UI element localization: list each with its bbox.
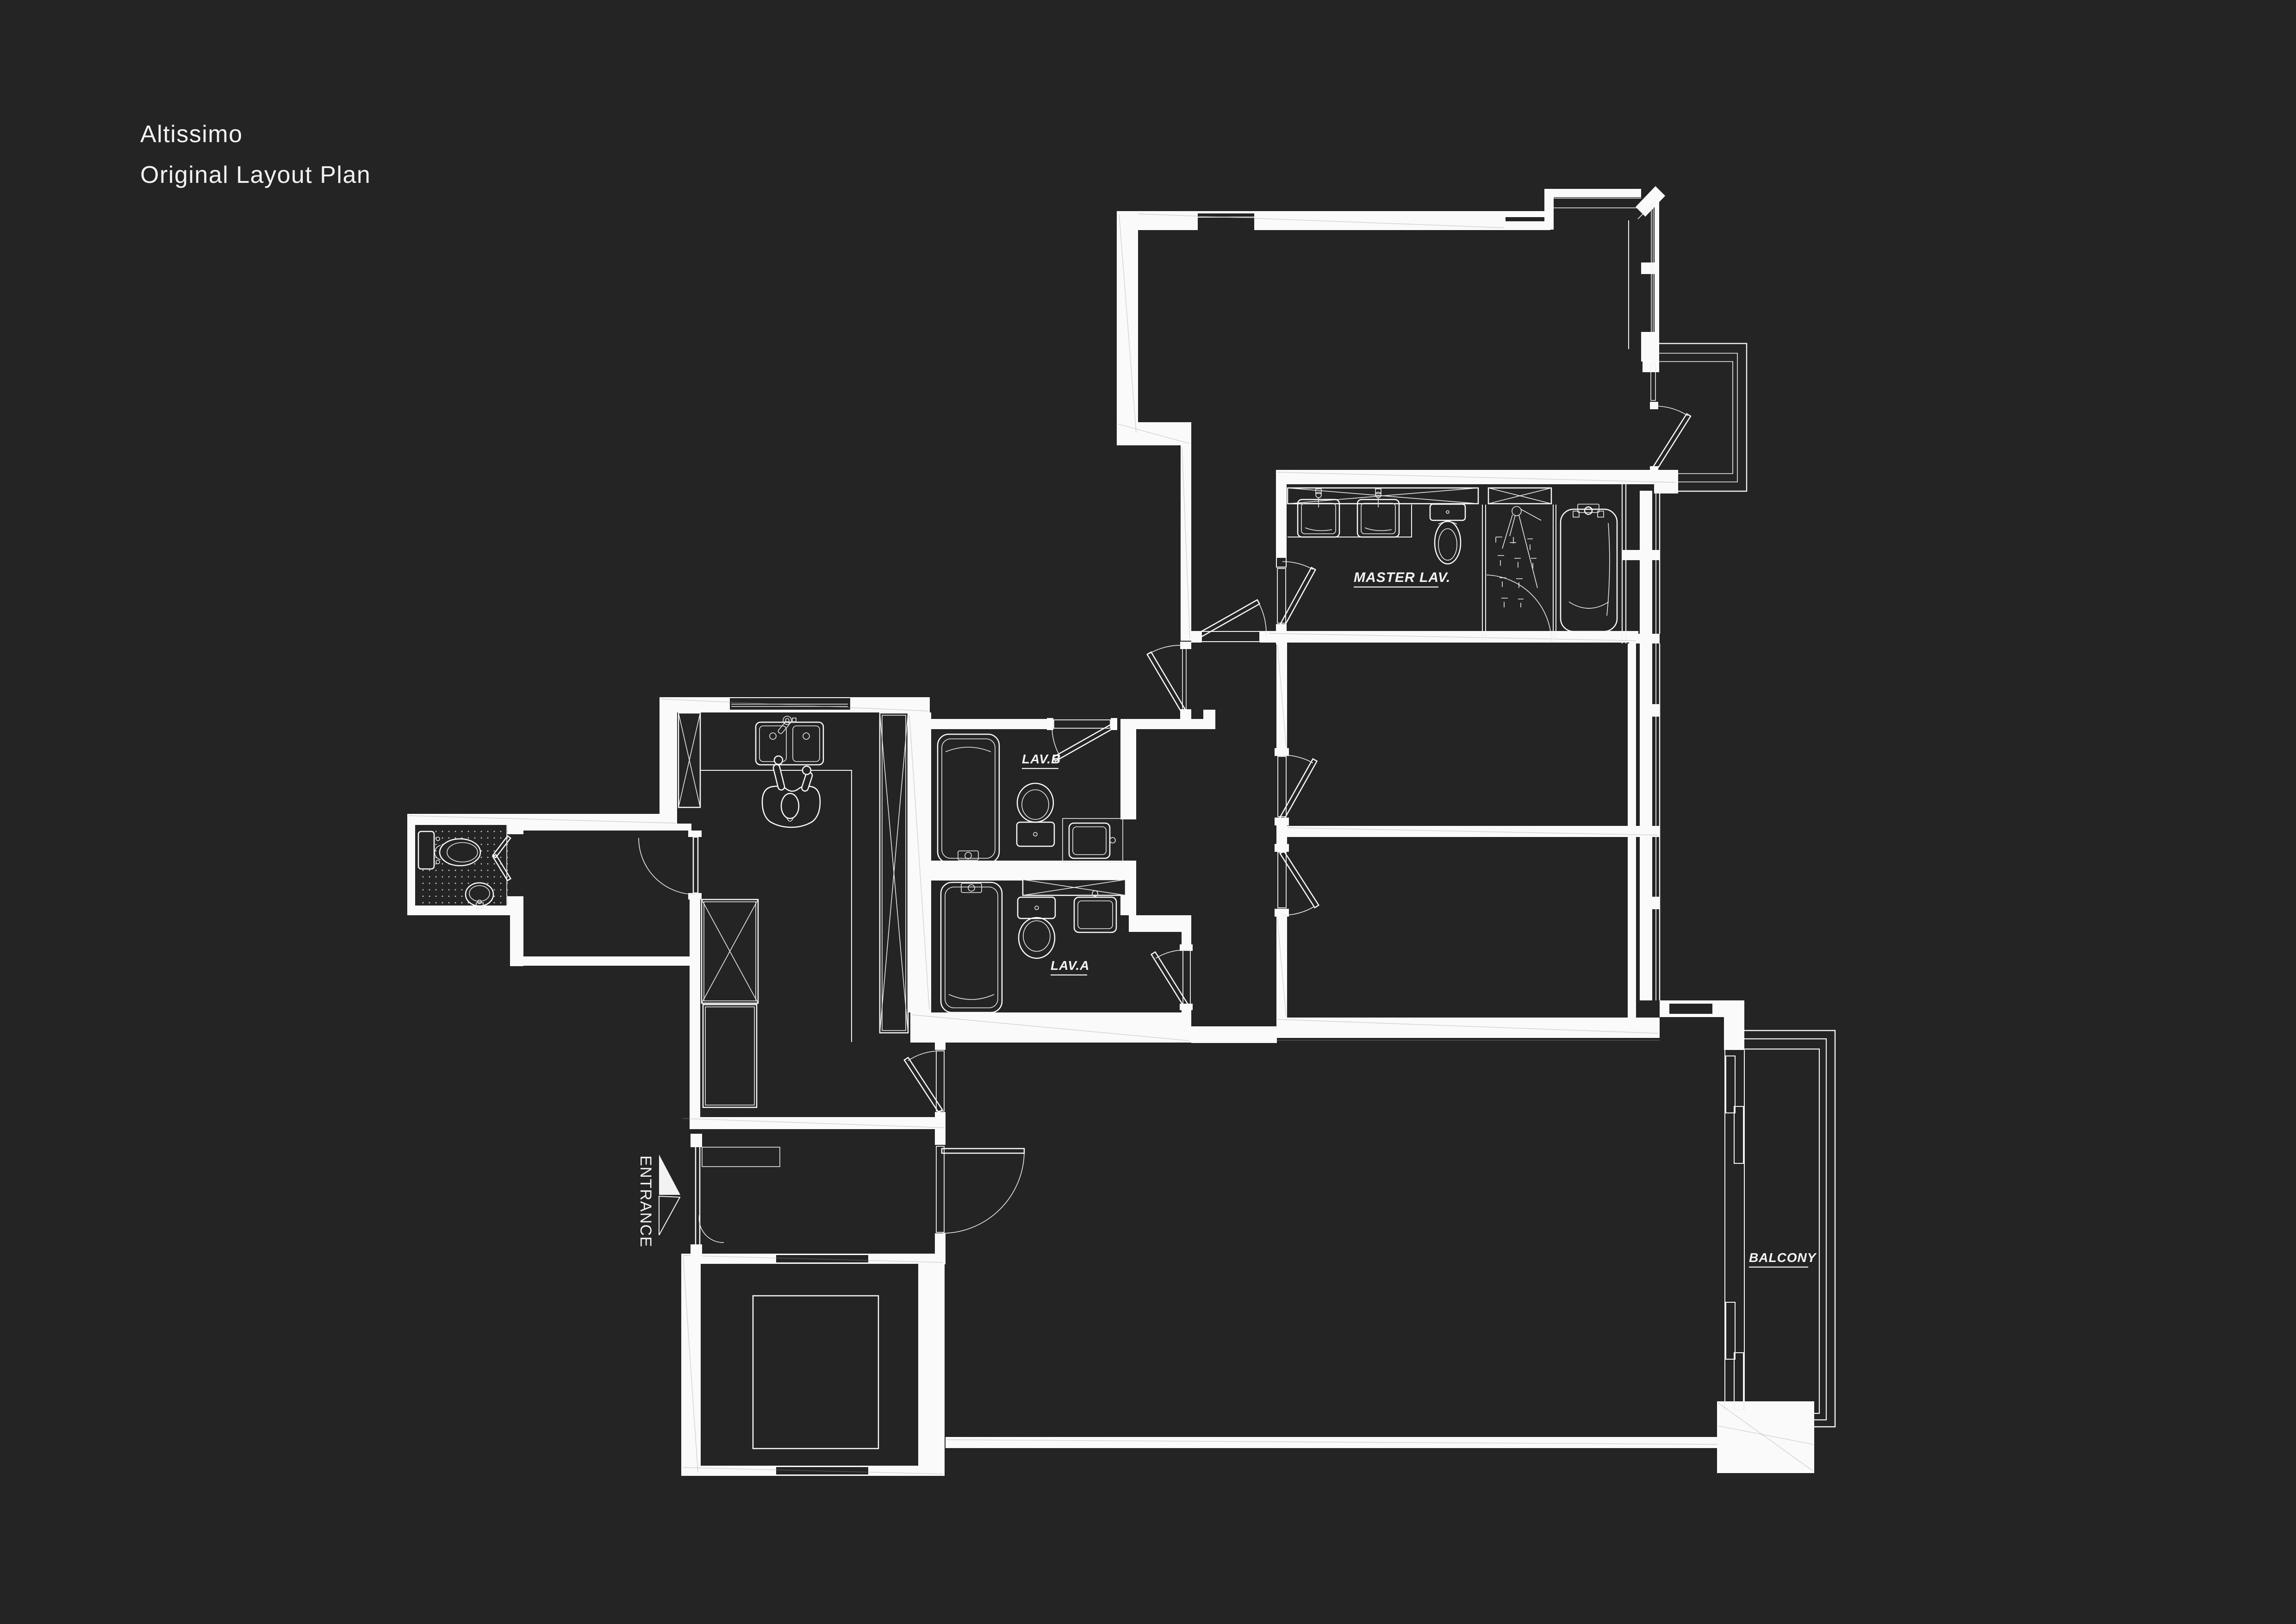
svg-text:Altissimo: Altissimo [140,121,243,148]
svg-text:LAV.B: LAV.B [1022,752,1061,766]
svg-text:Original Layout Plan: Original Layout Plan [140,162,371,188]
svg-text:BALCONY: BALCONY [1749,1250,1817,1265]
svg-text:MASTER LAV.: MASTER LAV. [1354,570,1450,585]
svg-text:LAV.A: LAV.A [1051,958,1089,973]
svg-text:ENTRANCE: ENTRANCE [637,1156,654,1248]
